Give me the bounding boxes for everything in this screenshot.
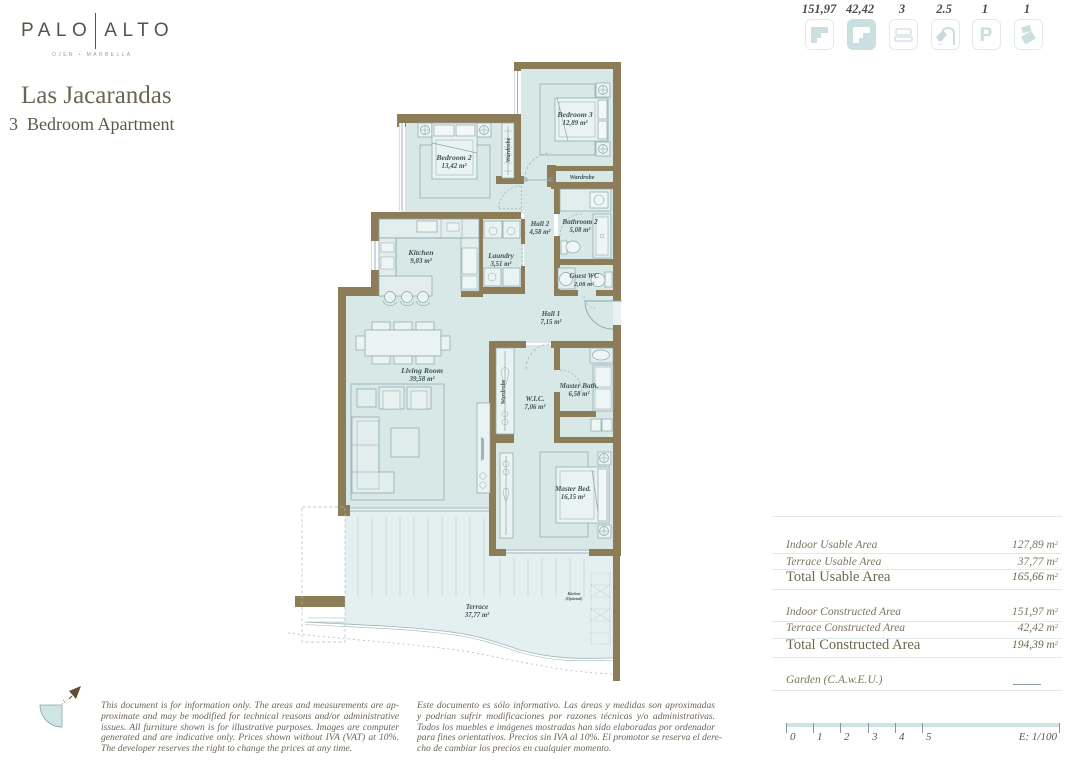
svg-text:Bedroom 2: Bedroom 2 <box>435 153 471 162</box>
svg-text:39,58 m²: 39,58 m² <box>408 375 435 383</box>
svg-text:Wardrobe: Wardrobe <box>500 379 507 404</box>
svg-text:Wardrobe: Wardrobe <box>570 174 595 181</box>
svg-text:Living Room: Living Room <box>400 366 443 375</box>
svg-text:5: 5 <box>926 731 932 743</box>
svg-text:E: 1/100: E: 1/100 <box>1018 731 1058 743</box>
svg-text:0: 0 <box>790 731 796 743</box>
svg-text:Bathroom 2: Bathroom 2 <box>561 218 598 226</box>
svg-text:5,08 m²: 5,08 m² <box>570 227 592 234</box>
svg-text:9,83 m²: 9,83 m² <box>410 257 432 265</box>
svg-text:Guest WC: Guest WC <box>569 272 599 280</box>
svg-text:Master Bath.: Master Bath. <box>559 382 599 390</box>
svg-text:3,51 m²: 3,51 m² <box>490 261 513 268</box>
svg-text:Hall 1: Hall 1 <box>541 310 561 318</box>
svg-text:Wardrobe: Wardrobe <box>505 137 512 162</box>
svg-text:(Optional): (Optional) <box>565 596 583 601</box>
svg-text:Bedroom 3: Bedroom 3 <box>556 110 592 119</box>
svg-text:12,89 m²: 12,89 m² <box>562 119 588 127</box>
svg-text:37,77 m²: 37,77 m² <box>464 612 490 619</box>
svg-text:2,08 m²: 2,08 m² <box>573 281 595 288</box>
svg-text:4: 4 <box>899 731 905 743</box>
svg-text:3: 3 <box>871 731 878 743</box>
svg-text:W.I.C.: W.I.C. <box>526 395 545 403</box>
svg-text:4,58 m²: 4,58 m² <box>529 229 552 236</box>
svg-text:Terrace: Terrace <box>466 603 489 611</box>
svg-text:6,58 m²: 6,58 m² <box>569 391 591 398</box>
svg-text:Master Bed.: Master Bed. <box>554 485 591 493</box>
svg-text:1: 1 <box>817 731 823 743</box>
svg-text:16,15 m²: 16,15 m² <box>561 494 586 501</box>
svg-text:Hall 2: Hall 2 <box>530 220 550 228</box>
svg-text:2: 2 <box>844 731 850 743</box>
svg-text:Laundry: Laundry <box>487 252 514 260</box>
svg-text:7,15 m²: 7,15 m² <box>541 319 563 326</box>
svg-text:7,06 m²: 7,06 m² <box>525 404 547 411</box>
svg-text:13,42 m²: 13,42 m² <box>441 162 467 170</box>
svg-text:Kitchen: Kitchen <box>407 248 433 257</box>
